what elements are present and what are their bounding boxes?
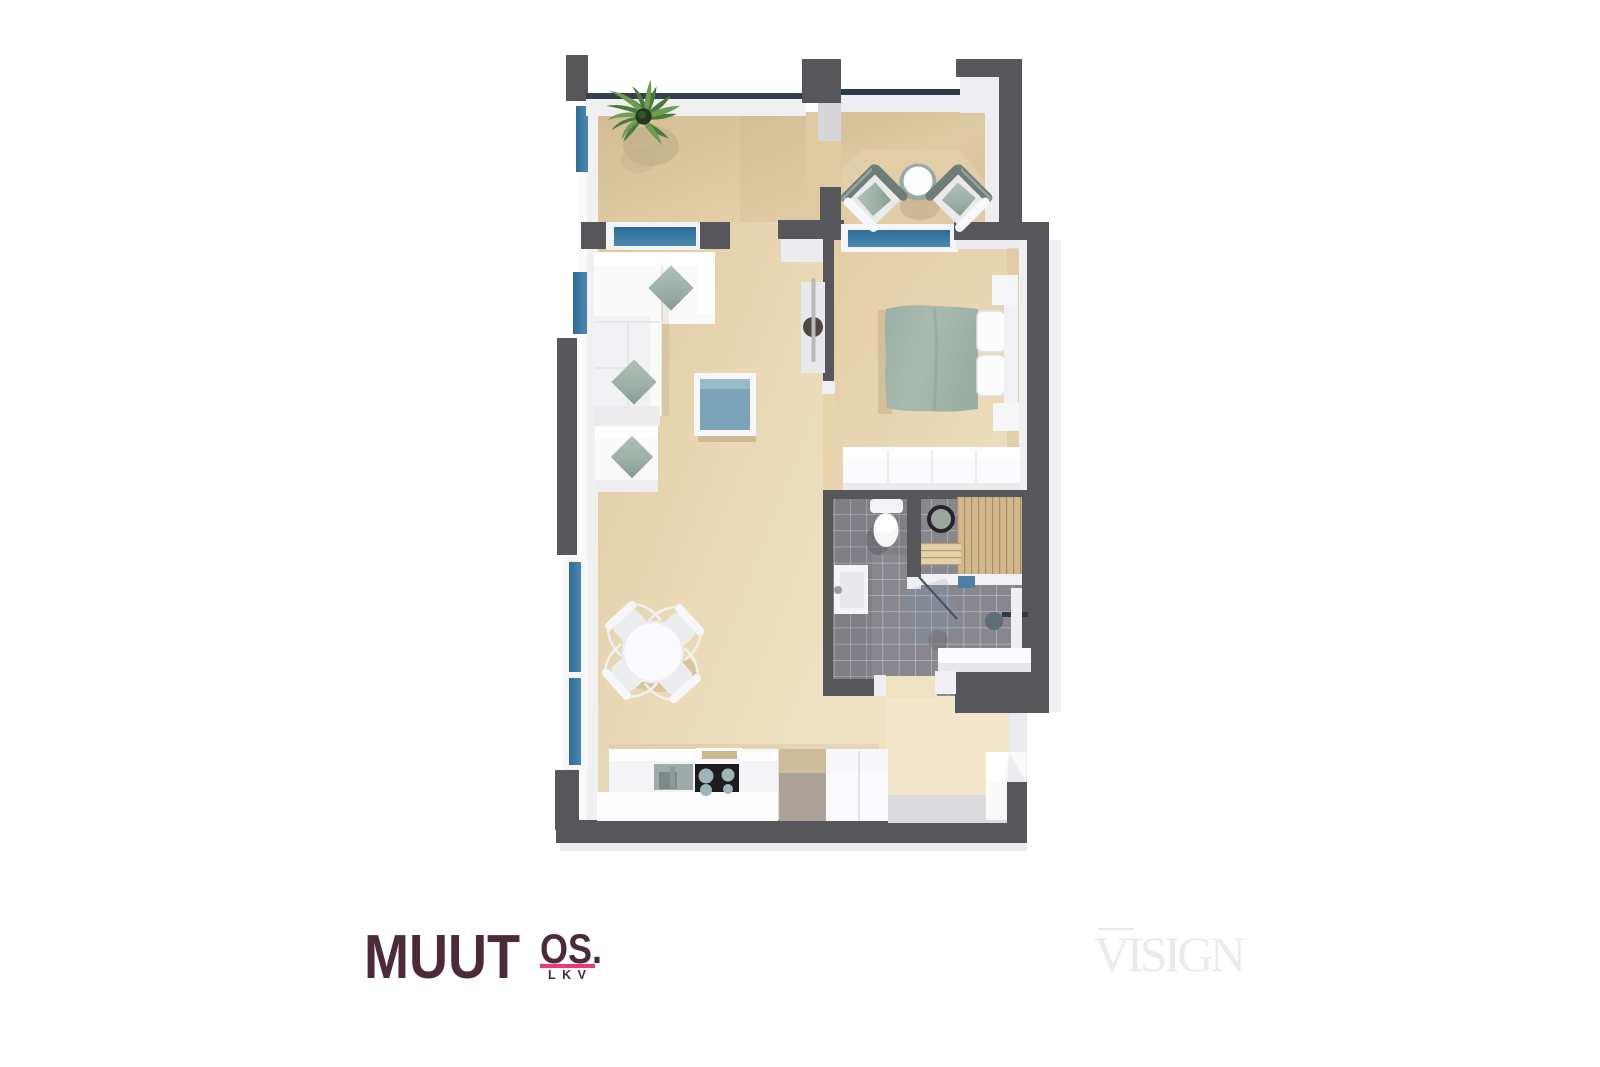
svg-text:VISIGN: VISIGN [1094,926,1246,982]
svg-text:LKV: LKV [548,968,593,982]
svg-text:MUUT: MUUT [364,923,520,992]
